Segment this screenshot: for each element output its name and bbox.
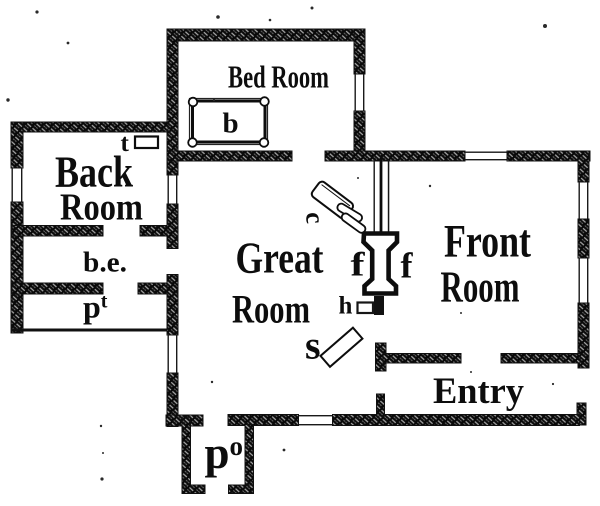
svg-text:Room: Room <box>441 263 520 312</box>
svg-text:Room: Room <box>232 287 310 332</box>
svg-text:Room: Room <box>60 187 143 229</box>
svg-text:b.e.: b.e. <box>83 248 127 279</box>
svg-text:Great: Great <box>236 234 324 283</box>
svg-text:f: f <box>401 246 414 286</box>
svg-text:Front: Front <box>444 216 531 268</box>
svg-text:f: f <box>351 247 366 284</box>
svg-text:c: c <box>300 211 330 225</box>
svg-text:Bed Room: Bed Room <box>228 59 329 95</box>
svg-text:Entry: Entry <box>433 371 524 412</box>
svg-text:b: b <box>223 108 239 140</box>
svg-text:h: h <box>339 293 353 320</box>
